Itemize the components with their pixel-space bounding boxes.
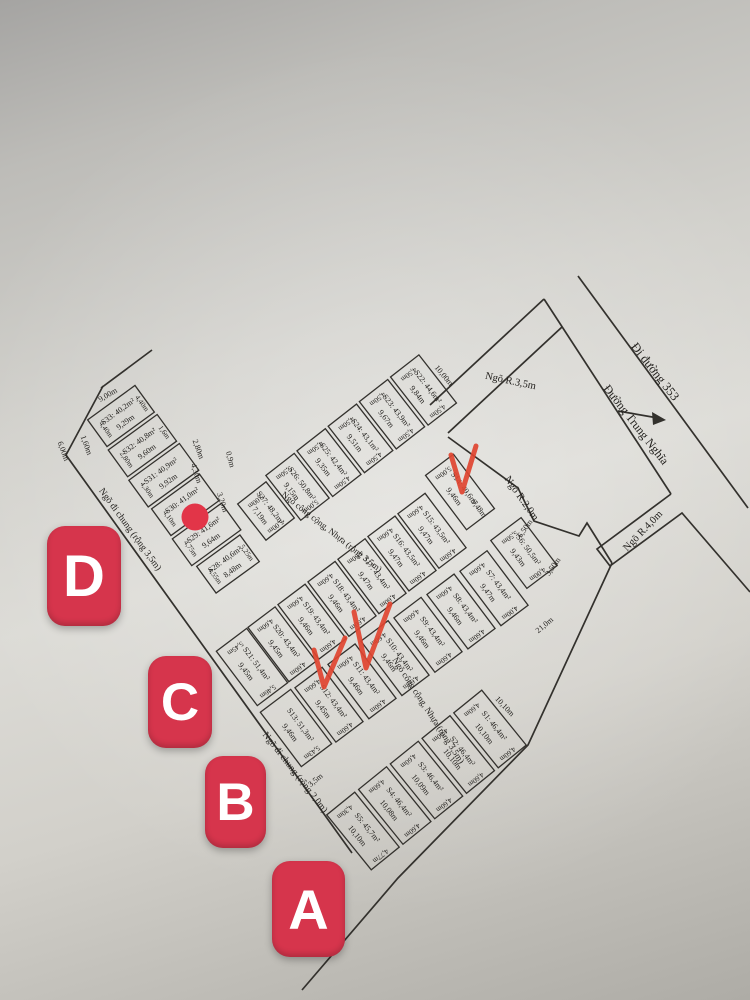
dimension-label: 4,30m [189,462,204,485]
dimension-label: 1,60m [79,434,95,457]
plot-width: 5,43m [302,744,322,762]
road-line [101,350,152,388]
plot-boundary [216,628,287,705]
plot-grid: S27: 48,2m²7,19m5,00m5,00mS26: 50,8m²9,1… [88,355,558,870]
road-line [302,563,612,990]
red-checkmark-S14 [451,446,476,492]
marker-badge-c: C [148,656,212,748]
dimension-label: 6,00m [56,440,72,463]
plot-width: 4,60m [467,627,487,645]
plot-width: 4,60m [438,547,458,565]
land-plot-map: S27: 48,2m²7,19m5,00m5,00mS26: 50,8m²9,1… [0,0,750,1000]
plot-width: 4,60m [434,796,453,814]
marker-badge-a: A [272,861,345,957]
street-label: Đi đường 353 [628,340,682,403]
badge-letter: C [161,672,199,733]
badge-letter: D [63,543,105,610]
plot-width: 4,60m [402,821,421,839]
road-line [597,494,750,592]
marker-badge-d: D [47,526,121,626]
dimension-label: 0,9m [224,450,237,469]
street-label: Ngõ R.2,0m [502,474,541,523]
street-label: Ngõ công cộng, Nhựa (rộng 3,5m) [390,655,466,765]
dimension-label: 9,48m [469,498,489,520]
direction-arrow-head [652,412,666,425]
road-lines [66,276,750,990]
dimension-label: 3,50m [543,555,562,577]
dimension-label: 9,00m [97,385,120,403]
plot-width: 4,00m [527,566,547,584]
plot-width: 1,6m [156,424,171,441]
dimension-label: 3,5m [306,771,325,789]
dimension-label: 10,10m [493,694,517,718]
plot-width: 4,60m [288,660,308,678]
plot-width: 4,60m [368,697,388,715]
plot-width: 4,00m [500,604,520,622]
red-dot [182,504,209,531]
dimension-label: 21,0m [534,615,556,635]
plot-S21: S21: 51,4m²9,45m5,45m5,46m [216,628,287,705]
plot-width: 4,60m [335,720,355,738]
plot-width: 4,77m [371,847,390,865]
plot-width: 4,60m [408,569,428,587]
marker-badge-b: B [205,756,266,848]
street-label: Đường Trung Nghĩa [601,382,672,468]
street-label: Ngõ công cộng, Nhựa (rộng 3,5m) [280,489,384,574]
dimension-label: 2,80m [191,438,207,461]
plot-width: 4,60m [434,651,454,669]
badge-letter: B [216,772,254,833]
plot-width: 4,50m [396,426,416,444]
plot-width: 4,60m [466,771,485,789]
badge-letter: A [288,877,328,942]
plot-width: 5,46m [258,683,278,701]
plot-width: 4,60m [318,637,338,655]
